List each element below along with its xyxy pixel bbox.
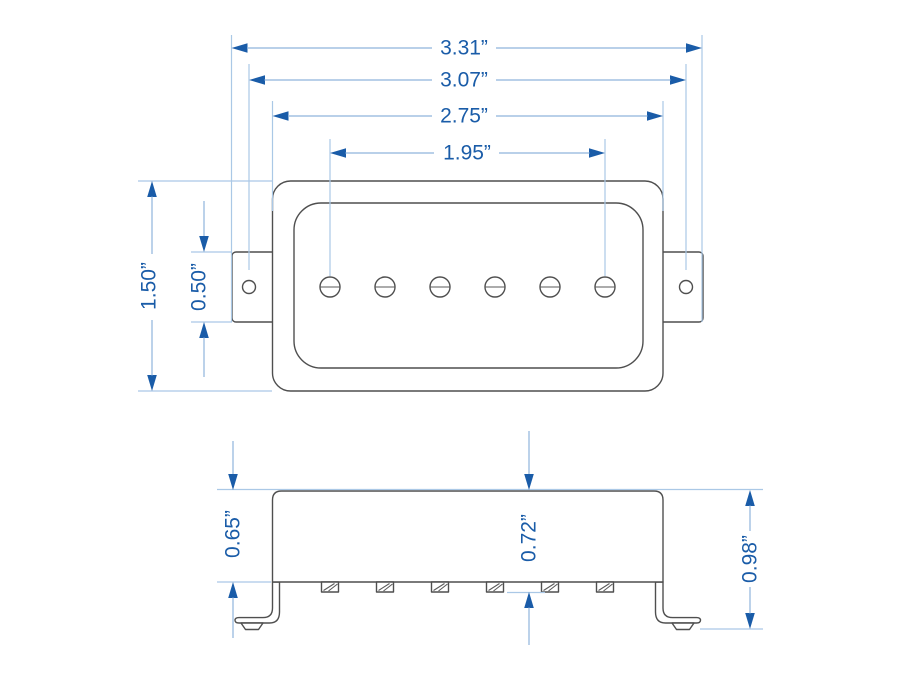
pole-screw-2 [375,277,395,297]
ear-screw-hole-right [680,281,693,294]
dimension-arrow-top [228,474,238,490]
screw-tip-2 [377,582,394,592]
screw-tip-3 [432,582,449,592]
pole-screw-6 [595,277,615,297]
leg-screw-tab-right [672,623,694,630]
dimension-label: 3.07” [440,69,488,92]
side-view [235,491,701,630]
dim-ear-height: 0.50” [188,201,211,377]
dimension-arrow-left [273,111,289,121]
dim-width-overall: 3.31” [232,37,703,60]
dimension-arrow-top [745,490,755,506]
dimension-arrow-right [686,43,702,53]
dimension-arrow-bottom [745,613,755,629]
dim-pole-spacing: 1.95” [330,142,605,165]
dim-screw-hole-spacing: 3.07” [249,69,686,92]
mounting-leg-left [235,582,280,623]
dimension-label: 0.98” [739,535,762,583]
dimension-label: 1.95” [443,142,491,165]
dim-depth-with-screws: 0.72” [518,431,541,645]
dimension-arrow-bottom [524,592,534,608]
top-view [232,181,703,391]
dimension-label: 1.50” [138,262,161,310]
dimension-arrow-right [647,111,663,121]
dimension-arrow-bottom [228,582,238,598]
pole-screw-4 [485,277,505,297]
dim-ring-width: 2.75” [273,105,664,128]
dim-ring-height: 1.50” [138,181,161,391]
dimension-label: 2.75” [440,105,488,128]
pole-screw-tips [322,582,614,592]
dimension-arrow-left [232,43,248,53]
dimension-arrow-top [199,236,209,252]
pole-screw-3 [430,277,450,297]
cover-side-profile [273,491,664,582]
dimension-arrow-bottom [147,375,157,391]
dimension-arrow-right [589,148,605,158]
pole-screw-5 [540,277,560,297]
dimension-label: 0.50” [188,263,211,311]
pickup-dimension-drawing: 3.31” 3.07” 2.75” 1.95” [0,0,900,675]
dimension-arrow-top [147,181,157,197]
pickup-cover [294,203,643,368]
dimension-label: 0.65” [222,510,245,558]
mounting-leg-right [656,582,701,623]
pole-screw-1 [320,277,340,297]
dim-cover-depth: 0.65” [222,441,245,638]
dimension-label: 3.31” [440,37,488,60]
dimension-arrow-right [670,75,686,85]
dimension-label: 0.72” [518,514,541,562]
screw-tip-5 [542,582,559,592]
screw-tip-1 [322,582,339,592]
dimension-arrow-bottom [199,322,209,338]
leg-screw-tab-left [241,623,263,630]
dim-overall-depth: 0.98” [739,490,762,629]
screw-tip-4 [487,582,504,592]
screw-tip-6 [597,582,614,592]
dimension-arrow-left [249,75,265,85]
ear-screw-hole-left [243,281,256,294]
dimension-arrow-left [330,148,346,158]
drawing-svg: 3.31” 3.07” 2.75” 1.95” [0,0,900,675]
dimension-arrow-top [524,474,534,490]
